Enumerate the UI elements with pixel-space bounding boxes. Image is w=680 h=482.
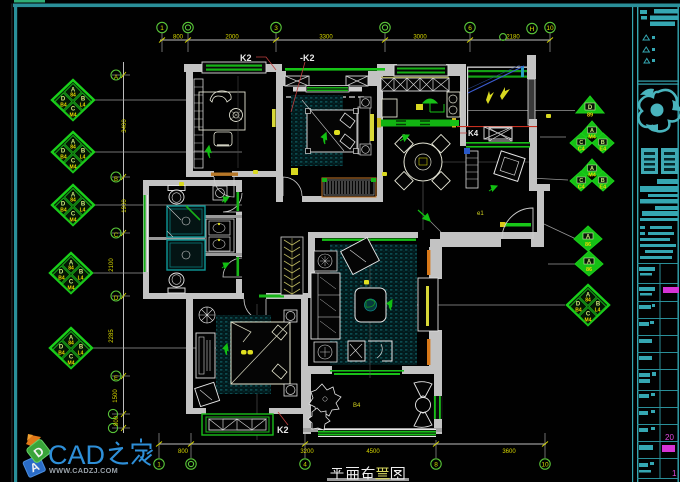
svg-text:WWW.CADZJ.COM: WWW.CADZJ.COM: [49, 466, 118, 475]
svg-text:3400: 3400: [122, 119, 128, 133]
svg-text:B4: B4: [353, 403, 361, 409]
svg-text:4500: 4500: [366, 449, 380, 455]
svg-text:1: 1: [160, 25, 164, 32]
svg-text:3600: 3600: [502, 449, 516, 455]
svg-text:800: 800: [173, 35, 184, 41]
svg-text:B: B: [114, 177, 118, 183]
svg-text:2180: 2180: [506, 35, 520, 41]
svg-text:E: E: [114, 376, 118, 382]
svg-text:C: C: [114, 233, 119, 239]
svg-text:3300: 3300: [319, 35, 333, 41]
svg-text:1: 1: [157, 462, 161, 469]
svg-text:10: 10: [541, 462, 549, 469]
svg-text:8: 8: [434, 462, 438, 469]
svg-text:1900: 1900: [122, 199, 128, 213]
svg-text:2100: 2100: [109, 258, 115, 272]
svg-text:6: 6: [468, 25, 472, 32]
svg-text:D: D: [114, 296, 119, 302]
svg-text:20: 20: [665, 433, 674, 442]
svg-text:10: 10: [546, 25, 554, 32]
svg-text:A: A: [114, 75, 118, 81]
svg-text:H: H: [530, 26, 535, 33]
svg-text:4: 4: [303, 462, 307, 469]
svg-text:800: 800: [114, 415, 120, 426]
svg-text:1: 1: [672, 469, 677, 478]
svg-text:800: 800: [178, 449, 189, 455]
svg-text:e1: e1: [477, 211, 484, 217]
svg-text:K4: K4: [468, 129, 479, 138]
svg-text:3000: 3000: [413, 35, 427, 41]
svg-text:K2: K2: [240, 53, 252, 63]
svg-text:K2: K2: [277, 425, 289, 435]
svg-text:3200: 3200: [300, 449, 314, 455]
svg-text:1500: 1500: [113, 389, 119, 403]
svg-text:3: 3: [274, 25, 278, 32]
svg-text:-K2: -K2: [300, 53, 315, 63]
svg-text:2000: 2000: [225, 35, 239, 41]
svg-text:2285: 2285: [109, 329, 115, 343]
